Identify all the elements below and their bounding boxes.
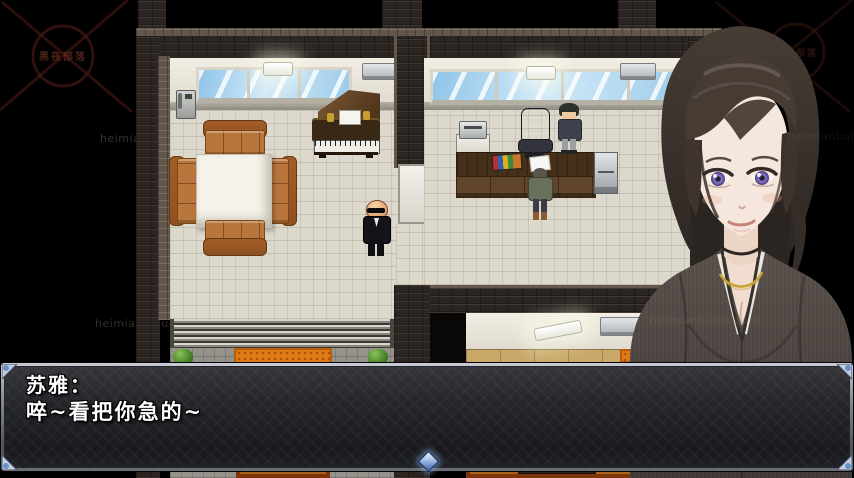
npc-legs bbox=[377, 241, 384, 256]
npc-jacket bbox=[528, 177, 553, 201]
dialogue-corner-ornament bbox=[2, 364, 18, 380]
npc-boots bbox=[533, 212, 539, 220]
printer-slot bbox=[464, 126, 482, 129]
window-pane-divider bbox=[247, 70, 250, 98]
piano-sheet-music bbox=[339, 110, 361, 125]
printer[interactable] bbox=[459, 121, 487, 139]
air-conditioner bbox=[362, 63, 397, 80]
npc-jacket bbox=[558, 119, 582, 141]
phone-screen bbox=[185, 94, 192, 99]
npc-suit-body bbox=[363, 216, 391, 244]
dialogue-speaker-name: 苏雅： bbox=[26, 369, 92, 398]
npc-pants bbox=[533, 199, 539, 212]
ceiling-light bbox=[526, 66, 556, 80]
wall-phone[interactable] bbox=[176, 90, 196, 119]
npc-shoes bbox=[561, 150, 577, 154]
ceiling-light bbox=[263, 62, 293, 76]
phone-handset bbox=[178, 93, 182, 109]
dialogue-corner-ornament bbox=[836, 454, 852, 470]
sofa-top bbox=[203, 120, 265, 158]
piano-leg bbox=[319, 154, 326, 158]
chair-seat bbox=[518, 139, 553, 153]
table bbox=[196, 154, 272, 228]
office-chair bbox=[517, 108, 553, 160]
piano-candle bbox=[363, 111, 370, 120]
npc-legs bbox=[368, 241, 375, 256]
game-screen[interactable]: 黑夜部落 黑夜部落 heimianbuluo.com heimianbuluo.… bbox=[0, 0, 854, 478]
npc-clerk[interactable] bbox=[527, 168, 552, 222]
metal-cabinet[interactable] bbox=[594, 152, 618, 194]
cabinet-handle bbox=[598, 171, 614, 173]
sofa-bottom bbox=[203, 218, 265, 254]
npc-dark-hair-man[interactable] bbox=[557, 103, 581, 155]
roller-shutters bbox=[170, 319, 394, 348]
window-pane-divider bbox=[495, 72, 498, 100]
npc-shirt bbox=[374, 218, 379, 227]
watermark-stamp-left: 黑夜部落 bbox=[0, 0, 140, 118]
grand-piano[interactable] bbox=[312, 90, 380, 158]
sofa-cushions bbox=[205, 130, 265, 156]
dialogue-box[interactable]: 苏雅： 啐~看把你急的~ bbox=[0, 362, 854, 472]
dialogue-line: 啐~看把你急的~ bbox=[26, 396, 203, 426]
stamp-text: 黑夜部落 bbox=[39, 50, 87, 63]
site-watermark: heimianbuluo.com bbox=[650, 314, 760, 327]
sofa-back bbox=[203, 238, 267, 256]
npc-pants bbox=[541, 199, 547, 212]
door-white[interactable] bbox=[398, 164, 426, 224]
site-watermark: heimianbuluo.com bbox=[788, 130, 854, 143]
npc-boots bbox=[541, 212, 547, 220]
dialogue-corner-ornament bbox=[2, 454, 18, 470]
piano-black-keys bbox=[315, 140, 377, 146]
npc-pants bbox=[570, 139, 576, 150]
window-pane-divider bbox=[298, 70, 301, 98]
dialogue-corner-ornament bbox=[836, 364, 852, 380]
npc-pants bbox=[562, 139, 568, 150]
npc-bald-suit-man[interactable] bbox=[362, 198, 390, 258]
npc-sunglasses bbox=[367, 208, 385, 213]
office-desk-front bbox=[456, 176, 596, 198]
piano-candle bbox=[327, 113, 334, 122]
piano-leg bbox=[366, 154, 373, 158]
window-pane-divider bbox=[561, 72, 564, 100]
sofa-left bbox=[169, 156, 199, 224]
doorway-dark[interactable] bbox=[430, 313, 466, 363]
